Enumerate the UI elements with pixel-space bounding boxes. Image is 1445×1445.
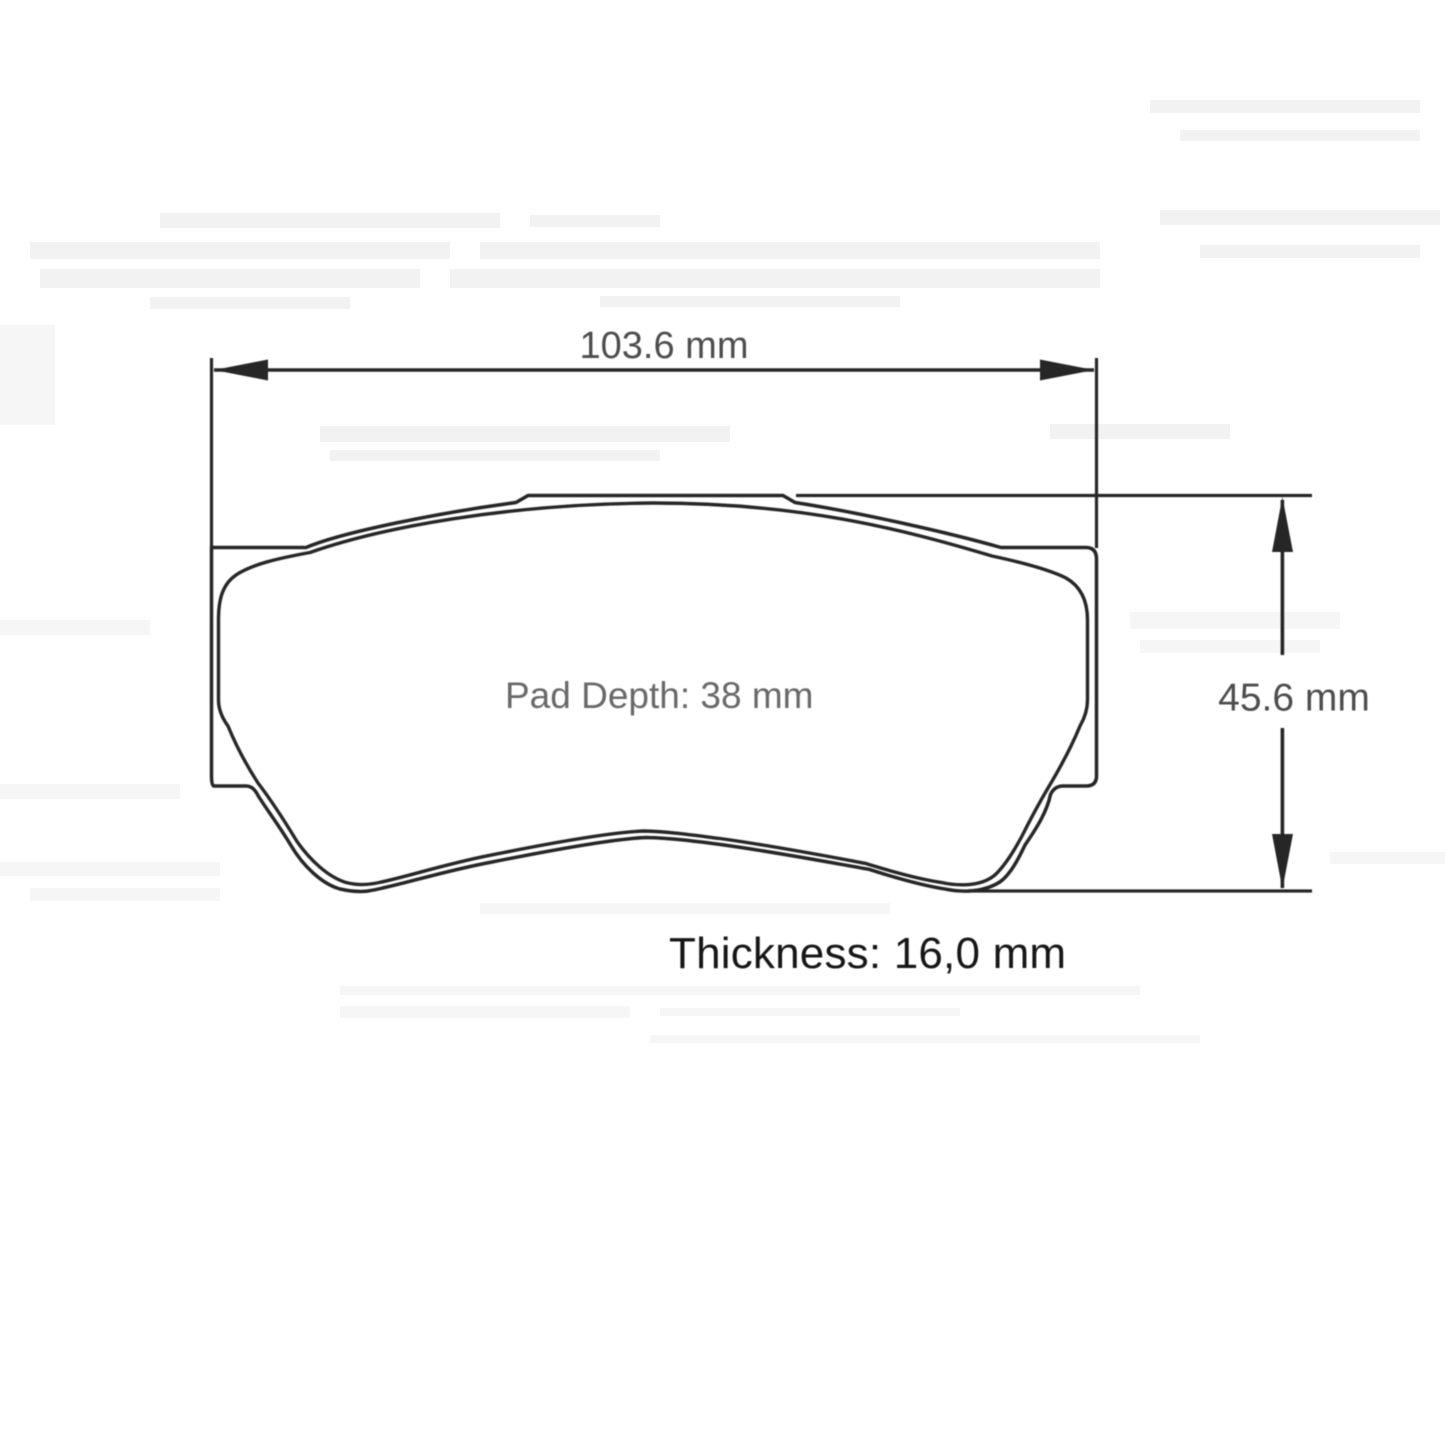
svg-text:Thickness: 16,0 mm: Thickness: 16,0 mm bbox=[669, 929, 1066, 978]
svg-text:Pad Depth: 38 mm: Pad Depth: 38 mm bbox=[505, 675, 813, 716]
svg-text:45.6 mm: 45.6 mm bbox=[1218, 677, 1370, 720]
svg-text:103.6 mm: 103.6 mm bbox=[580, 325, 749, 367]
